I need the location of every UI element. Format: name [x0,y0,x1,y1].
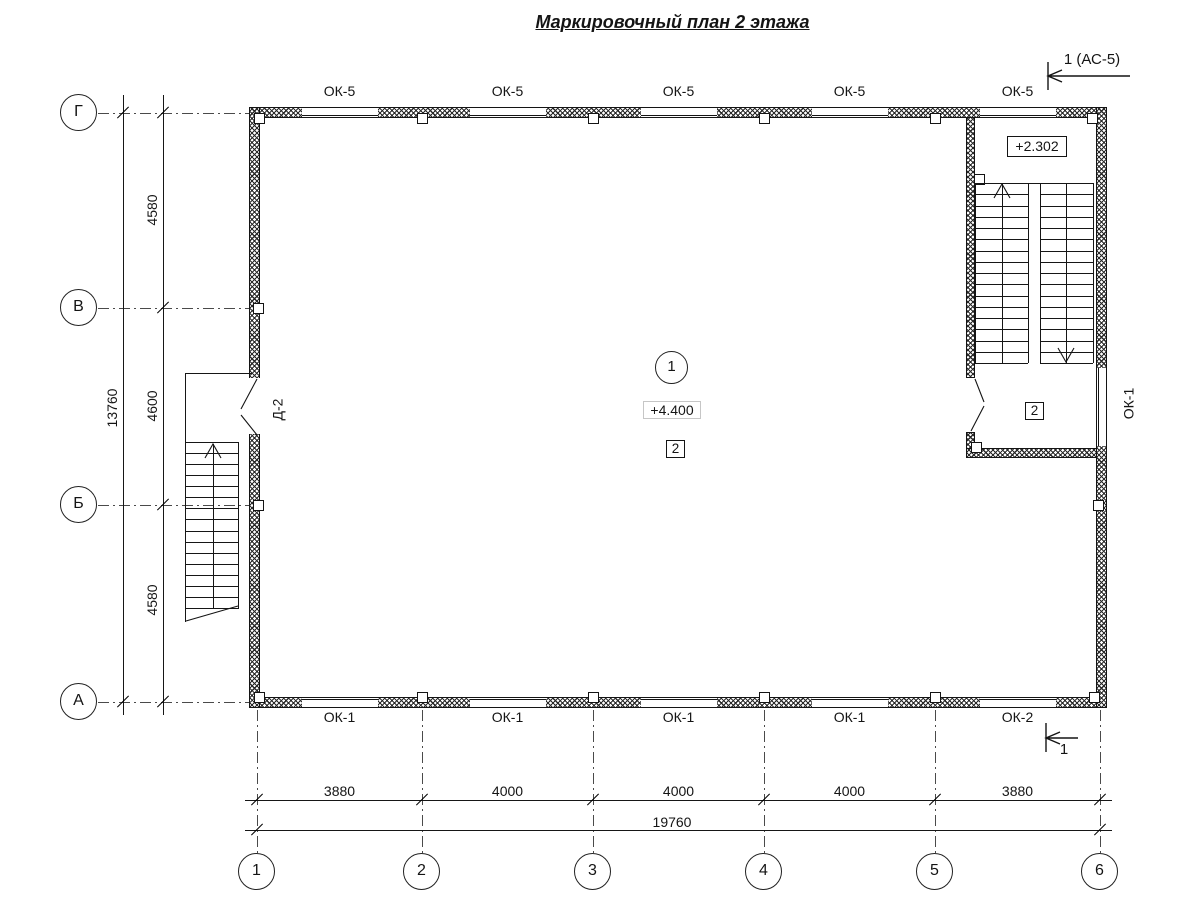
door-swing-left [241,379,257,435]
stair-up-arrow [205,444,221,458]
stair-up-arrow [994,184,1010,198]
door-swing-stairwell [971,379,984,431]
stair-down-arrow [1058,348,1074,362]
annotation-overlay [0,0,1200,900]
section-arrow-top [1048,62,1130,90]
floor-plan-canvas: Маркировочный план 2 этажа 1 (АС-5) 1 1 … [0,0,1200,900]
section-arrow-bottom [1046,723,1078,752]
stair-break-line [186,606,238,621]
